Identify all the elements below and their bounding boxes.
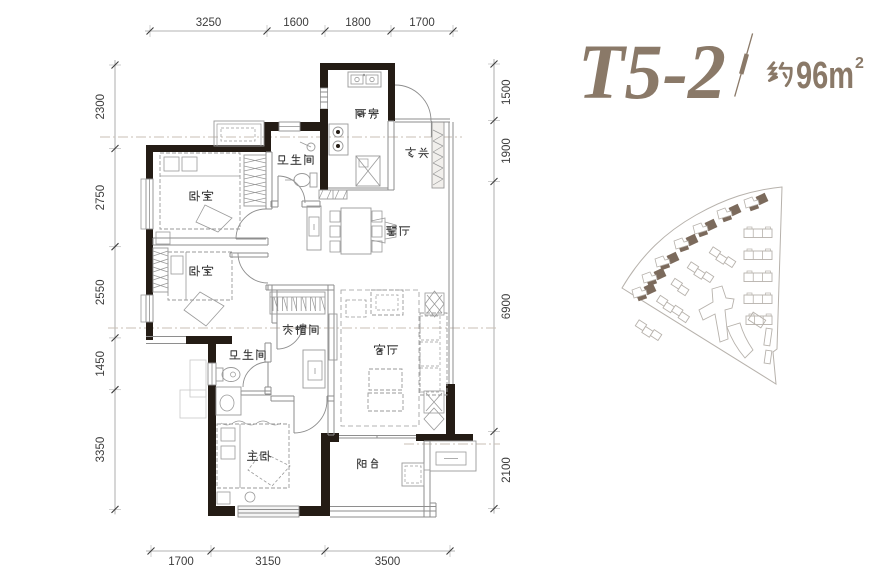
svg-text:1600: 1600 <box>283 17 309 29</box>
svg-text:2750: 2750 <box>95 185 107 211</box>
svg-text:1900: 1900 <box>501 138 513 164</box>
svg-text:3250: 3250 <box>196 17 222 29</box>
svg-text:3350: 3350 <box>95 437 107 463</box>
svg-text:T5-2: T5-2 <box>578 28 726 115</box>
svg-text:2300: 2300 <box>95 94 107 120</box>
svg-text:1500: 1500 <box>501 79 513 105</box>
svg-text:3150: 3150 <box>255 556 281 568</box>
svg-text:2100: 2100 <box>501 457 513 483</box>
svg-text:1700: 1700 <box>409 17 435 29</box>
svg-text:3500: 3500 <box>375 556 401 568</box>
svg-text:1800: 1800 <box>345 17 371 29</box>
svg-text:6900: 6900 <box>501 294 513 320</box>
svg-text:2550: 2550 <box>95 280 107 306</box>
svg-text:1450: 1450 <box>95 351 107 377</box>
svg-text:1700: 1700 <box>168 556 194 568</box>
svg-text:96m: 96m <box>796 55 854 97</box>
svg-text:2: 2 <box>855 55 864 72</box>
